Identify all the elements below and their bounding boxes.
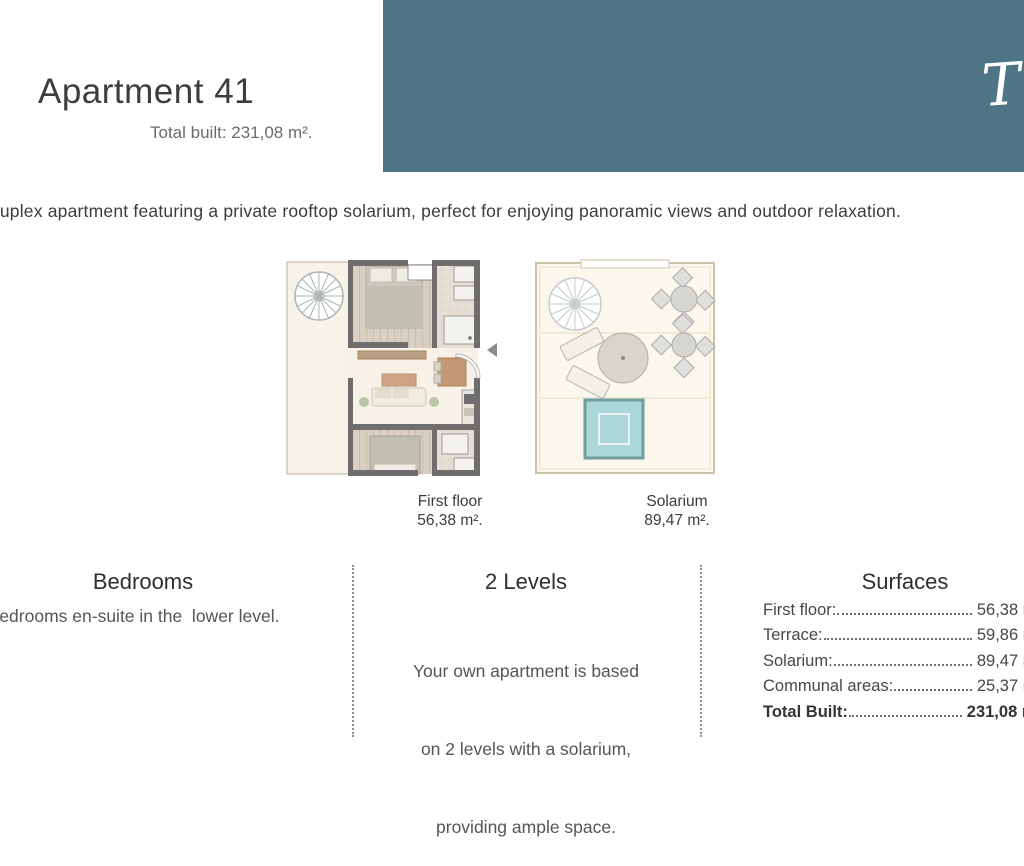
description-text: Duplex apartment featuring a private roo…: [0, 201, 901, 222]
spiral-staircase-icon: [295, 272, 343, 320]
surfaces-row-total-built: Total Built: 231,08 m²: [763, 703, 1024, 728]
surface-value: 56,38 m²: [977, 601, 1024, 620]
dot-leader: [824, 638, 972, 640]
closet-1: [408, 265, 435, 280]
first-floor-plan: [286, 258, 483, 478]
solarium-label: Solarium: [607, 492, 747, 511]
surfaces-row-first-floor: First floor: 56,38 m²: [763, 601, 1024, 626]
column-divider-1: [352, 565, 354, 737]
levels-heading: 2 Levels: [485, 569, 567, 595]
surface-value: 59,86 m²: [977, 626, 1024, 645]
first-floor-area: 56,38 m².: [380, 511, 520, 530]
page-title: Apartment 41: [38, 72, 254, 112]
dot-leader: [849, 715, 962, 717]
surface-label: Solarium:: [763, 652, 833, 671]
surfaces-row-terrace: Terrace: 59,86 m²: [763, 626, 1024, 651]
solarium-spiral-staircase-icon: [549, 278, 601, 330]
solarium-caption: Solarium 89,47 m².: [607, 492, 747, 530]
column-divider-2: [700, 565, 702, 737]
dot-leader: [837, 613, 972, 615]
type-banner: Type D: [383, 0, 1024, 172]
levels-line-1: Your own apartment is based: [413, 658, 639, 684]
levels-text: Your own apartment is based on 2 levels …: [413, 606, 639, 866]
dot-leader: [834, 664, 972, 666]
surfaces-row-solarium: Solarium: 89,47 m²: [763, 652, 1024, 677]
levels-line-3: providing ample space.: [413, 814, 639, 840]
surface-label: First floor:: [763, 601, 836, 620]
plunge-pool-icon: [585, 400, 643, 458]
surfaces-row-communal: Communal areas: 25,37 m²: [763, 677, 1024, 702]
solarium-plan: [533, 258, 717, 478]
bedrooms-text: 2 bedrooms en-suite in the lower level.: [0, 606, 279, 627]
bedrooms-heading: Bedrooms: [93, 569, 193, 595]
first-floor-label: First floor: [380, 492, 520, 511]
surfaces-table: First floor: 56,38 m² Terrace: 59,86 m² …: [763, 601, 1024, 728]
carousel-prev-arrow-icon[interactable]: [487, 343, 497, 357]
bed-2: [370, 436, 420, 474]
surface-label: Terrace:: [763, 626, 823, 645]
first-floor-caption: First floor 56,38 m².: [380, 492, 520, 530]
solarium-area: 89,47 m².: [607, 511, 747, 530]
surface-value: 231,08 m²: [967, 703, 1024, 722]
total-built-subtitle: Total built: 231,08 m².: [150, 123, 313, 143]
type-badge-script-text: Type D: [964, 9, 1024, 157]
surfaces-heading: Surfaces: [862, 569, 949, 595]
surface-label: Total Built:: [763, 703, 848, 722]
surface-value: 89,47 m²: [977, 652, 1024, 671]
levels-line-2: on 2 levels with a solarium,: [413, 736, 639, 762]
surface-label: Communal areas:: [763, 677, 893, 696]
surface-value: 25,37 m²: [977, 677, 1024, 696]
dot-leader: [894, 689, 972, 691]
